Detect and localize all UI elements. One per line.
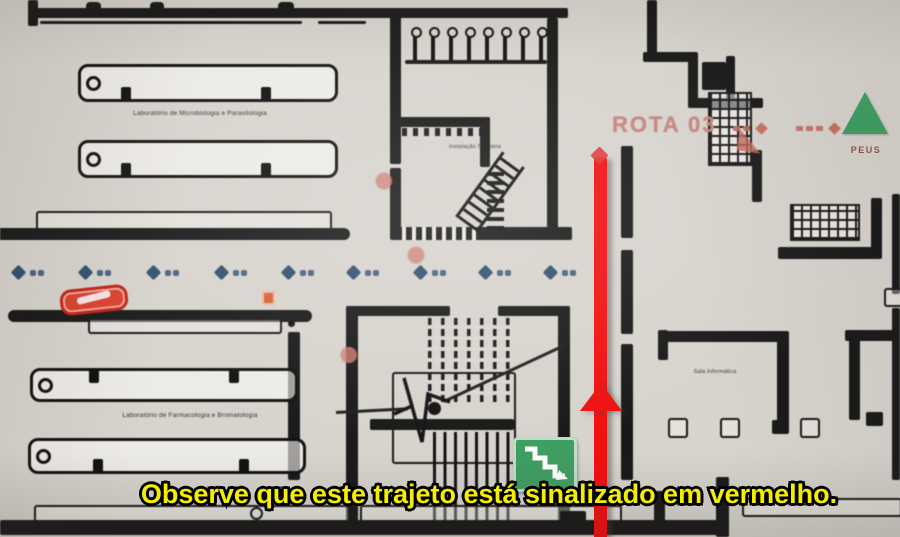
dot-icon (432, 270, 438, 276)
dot-icon (241, 270, 247, 276)
dash-icon (733, 126, 740, 131)
diamond-icon (78, 265, 94, 281)
stall-door-line (485, 37, 489, 61)
wall-cap (866, 412, 883, 426)
bench-fixture (239, 459, 249, 472)
toilet-stall-fixture (498, 27, 512, 63)
wall-column (150, 2, 164, 15)
toilet-stall-fixture (480, 27, 494, 63)
dot-icon (97, 270, 103, 276)
corridor-diamond-marker (348, 266, 382, 280)
column-outline (668, 418, 688, 438)
floor-plan: Laboratório de Microbiologia e Parasitol… (0, 0, 900, 537)
corridor-diamond-marker (480, 266, 514, 280)
toilet-stall-fixture (426, 27, 440, 63)
room-wall (390, 12, 401, 164)
bench-fixture (261, 87, 271, 100)
wall-block (702, 62, 726, 90)
dot-icon (440, 270, 446, 276)
corridor-diamond-marker (148, 266, 182, 280)
stall-door-line (539, 37, 543, 61)
assembly-point-triangle-icon (842, 92, 888, 134)
dot-icon (497, 270, 503, 276)
toilet-stall-fixture (516, 27, 530, 63)
dot-icon (300, 270, 306, 276)
wall-segment (621, 146, 633, 238)
wall-segment (621, 250, 633, 334)
wall-column (86, 2, 101, 15)
diamond-icon (214, 265, 230, 281)
wall-segment (849, 330, 860, 420)
exterior-wall (0, 520, 718, 535)
stall-door-line (449, 37, 453, 61)
corridor-diamond-marker (283, 266, 317, 280)
diamond-icon (281, 265, 297, 281)
wall-segment (752, 150, 762, 202)
column-outline (800, 418, 820, 438)
wall-segment (621, 344, 633, 480)
dot-icon (570, 270, 576, 276)
diamond-arrow-icon (828, 122, 841, 135)
sink-circle (86, 76, 101, 91)
room-label: Laboratório de Microbiologia e Parasitol… (108, 110, 292, 117)
corridor-diamond-marker (13, 266, 47, 280)
bench-edge-line (318, 21, 366, 24)
column-outline (884, 288, 900, 307)
small-stairs (487, 170, 504, 230)
dot-icon (365, 270, 371, 276)
lab-bench (78, 140, 338, 178)
stall-door-line (431, 37, 435, 61)
bench-fixture (121, 87, 131, 100)
wall-segment (666, 331, 780, 342)
bench-edge-line (40, 21, 302, 24)
wall-bench-outline (88, 318, 282, 334)
toilet-stall-fixture (534, 27, 548, 63)
wall-segment (28, 8, 568, 18)
diamond-icon (478, 265, 494, 281)
bench-fixture (93, 459, 103, 472)
lab-bench (78, 64, 338, 102)
route-point-dot (341, 347, 357, 363)
bench-fixture (89, 370, 99, 383)
dot-icon (38, 270, 44, 276)
toilet-stall-fixture (444, 27, 458, 63)
dot-icon (562, 270, 568, 276)
corridor-diamond-marker (415, 266, 449, 280)
wall-segment (778, 247, 882, 259)
column-outline (720, 418, 740, 438)
room-label: Instalação Sanitária (424, 143, 525, 150)
stall-door-line (521, 37, 525, 61)
corridor-diamond-marker (545, 266, 579, 280)
room-label: Laboratório de Farmacologia e Bromatolog… (107, 412, 273, 419)
dash-icon (816, 126, 823, 131)
partition-wall (398, 117, 490, 127)
stall-door-line (467, 37, 471, 61)
dotted-wall (396, 227, 482, 240)
dot-icon (233, 270, 239, 276)
route-point-dot (408, 247, 424, 263)
door-pivot-dot (288, 320, 295, 327)
toilet-stall-fixture (462, 27, 476, 63)
stall-door-line (413, 37, 417, 61)
toilet-stall-fixture (408, 27, 422, 63)
wall-segment (892, 308, 900, 480)
stair-grid (790, 204, 860, 241)
sink-circle (36, 449, 51, 464)
break-zigzag-symbol (392, 372, 454, 450)
stall-door-line (503, 37, 507, 61)
bench-fixture (261, 163, 271, 176)
wall-segment (647, 0, 657, 58)
stairwell-wall (346, 306, 450, 316)
assembly-point-label: PEUS (840, 145, 892, 155)
wall-segment (892, 194, 900, 294)
lab-bench (30, 368, 298, 402)
partition-wall (480, 117, 490, 167)
dash-icon (796, 126, 803, 131)
extinguisher-marker (262, 291, 275, 305)
evacuation-map-video-frame: Laboratório de Microbiologia e Parasitol… (0, 0, 900, 537)
video-subtitle: Observe que este trajeto está sinalizado… (141, 479, 837, 510)
room-wall (547, 18, 558, 236)
dot-icon (373, 270, 379, 276)
dot-icon (105, 270, 111, 276)
dot-icon (308, 270, 314, 276)
dash-icon (806, 126, 813, 131)
dot-icon (165, 270, 171, 276)
diamond-icon (346, 265, 362, 281)
corridor-diamond-marker (216, 266, 250, 280)
wash-bench-dashes (402, 128, 482, 136)
wall-segment (777, 331, 789, 428)
route-name-label: ROTA 03 (612, 112, 716, 138)
diamond-icon (146, 265, 162, 281)
corridor-wall (0, 228, 350, 240)
bench-fixture (121, 163, 131, 176)
sink-circle (86, 152, 101, 167)
diamond-icon (413, 265, 429, 281)
route-point-dot (376, 173, 392, 189)
bench-fixture (229, 370, 239, 383)
corridor-diamond-marker (80, 266, 114, 280)
wall-segment (871, 198, 882, 250)
dot-icon (173, 270, 179, 276)
wall-cap (772, 420, 789, 434)
dot-icon (30, 270, 36, 276)
wall-segment (560, 511, 586, 525)
route-arrowhead-up (580, 383, 622, 411)
wall-column (278, 2, 294, 15)
dash-icon (743, 126, 750, 131)
diamond-icon (543, 265, 559, 281)
room-label: Sala Informática (683, 368, 747, 375)
dot-icon (505, 270, 511, 276)
sink-circle (38, 378, 53, 393)
lab-bench (28, 438, 306, 474)
diamond-icon (11, 265, 27, 281)
